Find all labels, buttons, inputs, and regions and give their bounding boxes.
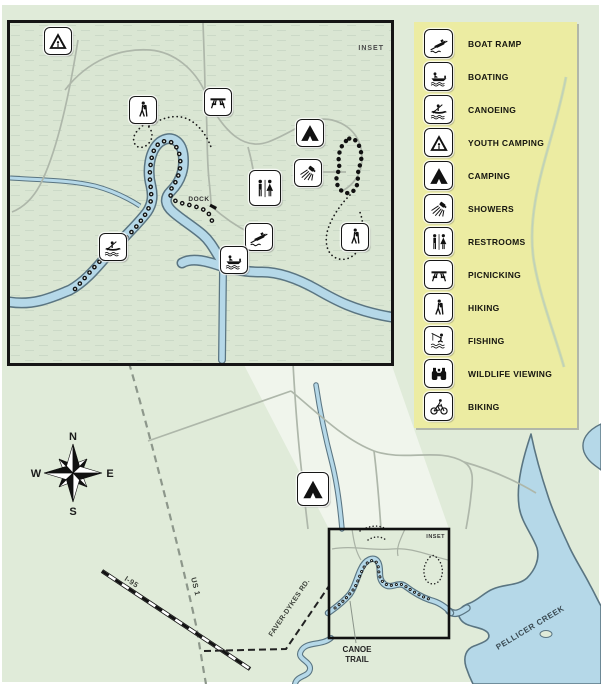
legend-item-hiking: HIKING <box>424 292 577 323</box>
legend-label: YOUTH CAMPING <box>468 138 544 148</box>
legend-label: WILDLIFE VIEWING <box>468 369 552 379</box>
legend-item-boating: BOATING <box>424 61 577 92</box>
legend-label: SHOWERS <box>468 204 514 214</box>
compass-south: S <box>69 506 76 518</box>
boating-icon <box>220 246 248 274</box>
compass-west: W <box>31 468 42 480</box>
boat-ramp-icon <box>245 223 273 251</box>
legend-label: CAMPING <box>468 171 510 181</box>
youth-camping-icon <box>44 27 72 55</box>
svg-text:CANOE: CANOE <box>343 645 373 654</box>
legend-item-camping: CAMPING <box>424 160 577 191</box>
park-map-page: INSET N E S W US 1 I-95 FAVER-DYKES RD. … <box>0 0 601 684</box>
legend-label: BOATING <box>468 72 509 82</box>
legend-label: FISHING <box>468 336 505 346</box>
legend-item-picnicking: PICNICKING <box>424 259 577 290</box>
legend-item-showers: SHOWERS <box>424 193 577 224</box>
compass-east: E <box>106 468 113 480</box>
camping-icon <box>424 161 453 190</box>
legend-item-boat-ramp: BOAT RAMP <box>424 28 577 59</box>
showers-icon <box>424 194 453 223</box>
inset-title: INSET <box>358 45 384 52</box>
legend-panel: BOAT RAMP BOATING CANOEING YOUTH CAMPING… <box>414 22 577 428</box>
legend-item-biking: BIKING <box>424 391 577 422</box>
wildlife-viewing-icon <box>424 359 453 388</box>
inset-detail-map: DOCK INSET <box>7 20 394 366</box>
hiking-icon <box>341 223 369 251</box>
svg-text:TRAIL: TRAIL <box>345 655 369 664</box>
canoeing-icon <box>424 95 453 124</box>
youth-camping-icon <box>424 128 453 157</box>
restrooms-icon <box>249 170 281 206</box>
locator-inset-label: INSET <box>426 534 445 540</box>
compass-north: N <box>69 431 77 443</box>
boating-icon <box>424 62 453 91</box>
canoe-trail-label: CANOE TRAIL <box>343 645 373 664</box>
legend-label: CANOEING <box>468 105 516 115</box>
dock-label: DOCK <box>188 196 209 203</box>
legend-label: BIKING <box>468 402 500 412</box>
legend-item-restrooms: RESTROOMS <box>424 226 577 257</box>
biking-icon <box>424 392 453 421</box>
legend-label: PICNICKING <box>468 270 521 280</box>
legend-item-canoeing: CANOEING <box>424 94 577 125</box>
camping-icon <box>296 119 324 147</box>
picnicking-icon <box>424 260 453 289</box>
legend-label: RESTROOMS <box>468 237 525 247</box>
camping-icon <box>297 472 329 506</box>
legend-label: BOAT RAMP <box>468 39 522 49</box>
showers-icon <box>294 159 322 187</box>
legend-item-youth-camping: YOUTH CAMPING <box>424 127 577 158</box>
boat-ramp-icon <box>424 29 453 58</box>
fishing-icon <box>424 326 453 355</box>
restrooms-icon <box>424 227 453 256</box>
legend-label: HIKING <box>468 303 500 313</box>
hiking-icon <box>129 96 157 124</box>
inset-land <box>10 23 391 363</box>
legend-item-wildlife-viewing: WILDLIFE VIEWING <box>424 358 577 389</box>
canoeing-icon <box>99 233 127 261</box>
hiking-icon <box>424 293 453 322</box>
picnicking-icon <box>204 88 232 116</box>
legend-item-fishing: FISHING <box>424 325 577 356</box>
